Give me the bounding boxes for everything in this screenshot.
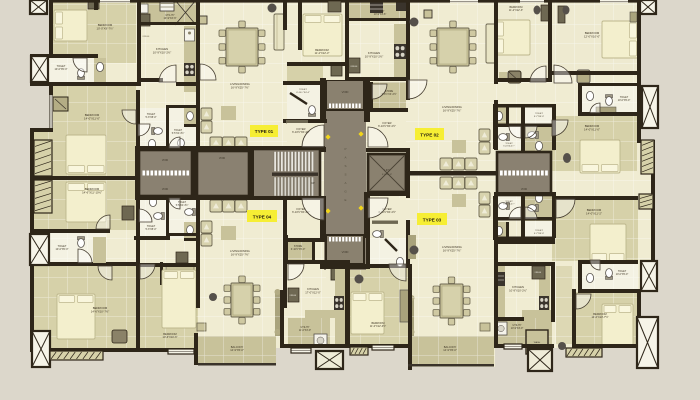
svg-text:6'-10½"X6'-4½": 6'-10½"X6'-4½" [378, 124, 396, 128]
svg-text:14'-0"X11'-0": 14'-0"X11'-0" [584, 128, 600, 132]
svg-text:10'-9"X3'-0": 10'-9"X3'-0" [511, 327, 524, 330]
svg-text:TYPE 03: TYPE 03 [423, 218, 442, 223]
svg-text:5'-0"X6'-8": 5'-0"X6'-8" [382, 174, 392, 176]
svg-text:TYPE 04: TYPE 04 [253, 215, 272, 220]
svg-text:10'-0"X5'-0": 10'-0"X5'-0" [616, 273, 629, 276]
svg-text:5'-3"X8'-0": 5'-3"X8'-0" [145, 116, 156, 119]
svg-text:TOILET: TOILET [535, 230, 543, 232]
svg-text:TOILET: TOILET [299, 89, 307, 91]
svg-text:A: A [344, 181, 346, 185]
svg-text:5'-3"X8'-0": 5'-3"X8'-0" [145, 228, 156, 231]
svg-text:16'-9"X25'-7½": 16'-9"X25'-7½" [443, 249, 461, 253]
svg-text:10'-0"X5'-0": 10'-0"X5'-0" [54, 68, 67, 71]
svg-text:P: P [344, 147, 346, 151]
svg-text:4'-6½"X3'-4½": 4'-6½"X3'-4½" [381, 92, 396, 96]
svg-text:10'-9"X3'-6": 10'-9"X3'-6" [374, 13, 387, 16]
svg-text:10'-9"X10'-2½": 10'-9"X10'-2½" [509, 289, 527, 293]
svg-text:14'-0"X11'-0": 14'-0"X11'-0" [84, 117, 100, 121]
svg-text:S: S [344, 173, 346, 177]
svg-text:5'-7"X8'-0": 5'-7"X8'-0" [534, 116, 544, 118]
svg-text:14'-6"X10'-7½": 14'-6"X10'-7½" [91, 310, 109, 314]
svg-text:10'-9"X3'-6": 10'-9"X3'-6" [163, 17, 176, 20]
svg-text:10'-6"X10'-6": 10'-6"X10'-6" [163, 335, 178, 339]
svg-text:VOID: VOID [342, 250, 349, 254]
svg-text:10'-0"X5'-0": 10'-0"X5'-0" [55, 248, 68, 251]
svg-text:VOID: VOID [521, 187, 527, 191]
svg-text:14'-6"X11'-10½": 14'-6"X11'-10½" [82, 191, 102, 195]
svg-text:14'-6"X10'-7½": 14'-6"X10'-7½" [591, 315, 608, 319]
svg-text:10'-0"X9'-7½": 10'-0"X9'-7½" [97, 27, 114, 31]
svg-text:10'-9"X10'-2½": 10'-9"X10'-2½" [365, 55, 383, 59]
svg-text:VOID: VOID [342, 90, 349, 94]
svg-text:VOID: VOID [162, 187, 168, 191]
svg-text:LIFT: LIFT [384, 168, 390, 172]
svg-text:12'-0"X10'-0": 12'-0"X10'-0" [584, 35, 600, 39]
svg-text:FRIDGE: FRIDGE [535, 272, 542, 274]
svg-text:16'-9"X25'-7½": 16'-9"X25'-7½" [231, 253, 249, 257]
svg-text:VOID: VOID [162, 158, 168, 162]
svg-text:TOILET: TOILET [178, 202, 187, 204]
svg-text:11'-2"X12'-3": 11'-2"X12'-3" [509, 9, 523, 12]
svg-text:E: E [344, 198, 346, 202]
svg-text:11'-2"X12'-3": 11'-2"X12'-3" [315, 51, 330, 55]
svg-text:10'-0"X5'-0": 10'-0"X5'-0" [618, 99, 631, 102]
svg-text:FRIDGE: FRIDGE [351, 66, 359, 68]
svg-text:KITCHEN: KITCHEN [512, 285, 524, 289]
svg-text:17'-0"X12'-0": 17'-0"X12'-0" [305, 291, 321, 295]
svg-text:S: S [344, 164, 346, 168]
svg-text:TOILET: TOILET [174, 130, 183, 132]
svg-text:14'-9"X5'-0": 14'-9"X5'-0" [230, 348, 244, 352]
svg-text:16'-9"X25'-7½": 16'-9"X25'-7½" [231, 86, 249, 90]
svg-text:TYPE 02: TYPE 02 [420, 133, 439, 138]
svg-text:FRIDGE: FRIDGE [290, 295, 297, 297]
svg-text:10'-9"X10'-2½": 10'-9"X10'-2½" [153, 51, 171, 55]
svg-text:KITCHEN: KITCHEN [307, 287, 319, 291]
svg-text:14'-9"X5'-0": 14'-9"X5'-0" [443, 348, 457, 352]
svg-text:TOILET: TOILET [535, 113, 543, 115]
svg-text:WASH: WASH [534, 341, 541, 344]
svg-text:FRIDGE: FRIDGE [143, 36, 151, 38]
svg-text:14'-0"X11'-2": 14'-0"X11'-2" [586, 212, 602, 216]
svg-text:11'-0"X3'-9": 11'-0"X3'-9" [299, 329, 311, 332]
svg-text:VOID: VOID [219, 156, 225, 160]
svg-text:5'-7"X8'-0": 5'-7"X8'-0" [534, 233, 544, 235]
svg-text:16'-9"X25'-7½": 16'-9"X25'-7½" [443, 109, 461, 113]
svg-text:6'-10½"X5'-0": 6'-10½"X5'-0" [291, 247, 306, 251]
svg-text:TYPE 01: TYPE 01 [255, 129, 274, 134]
svg-text:A: A [344, 156, 346, 160]
svg-text:UP: UP [311, 181, 315, 185]
svg-text:11'-0"X12'-3½": 11'-0"X12'-3½" [370, 324, 386, 328]
